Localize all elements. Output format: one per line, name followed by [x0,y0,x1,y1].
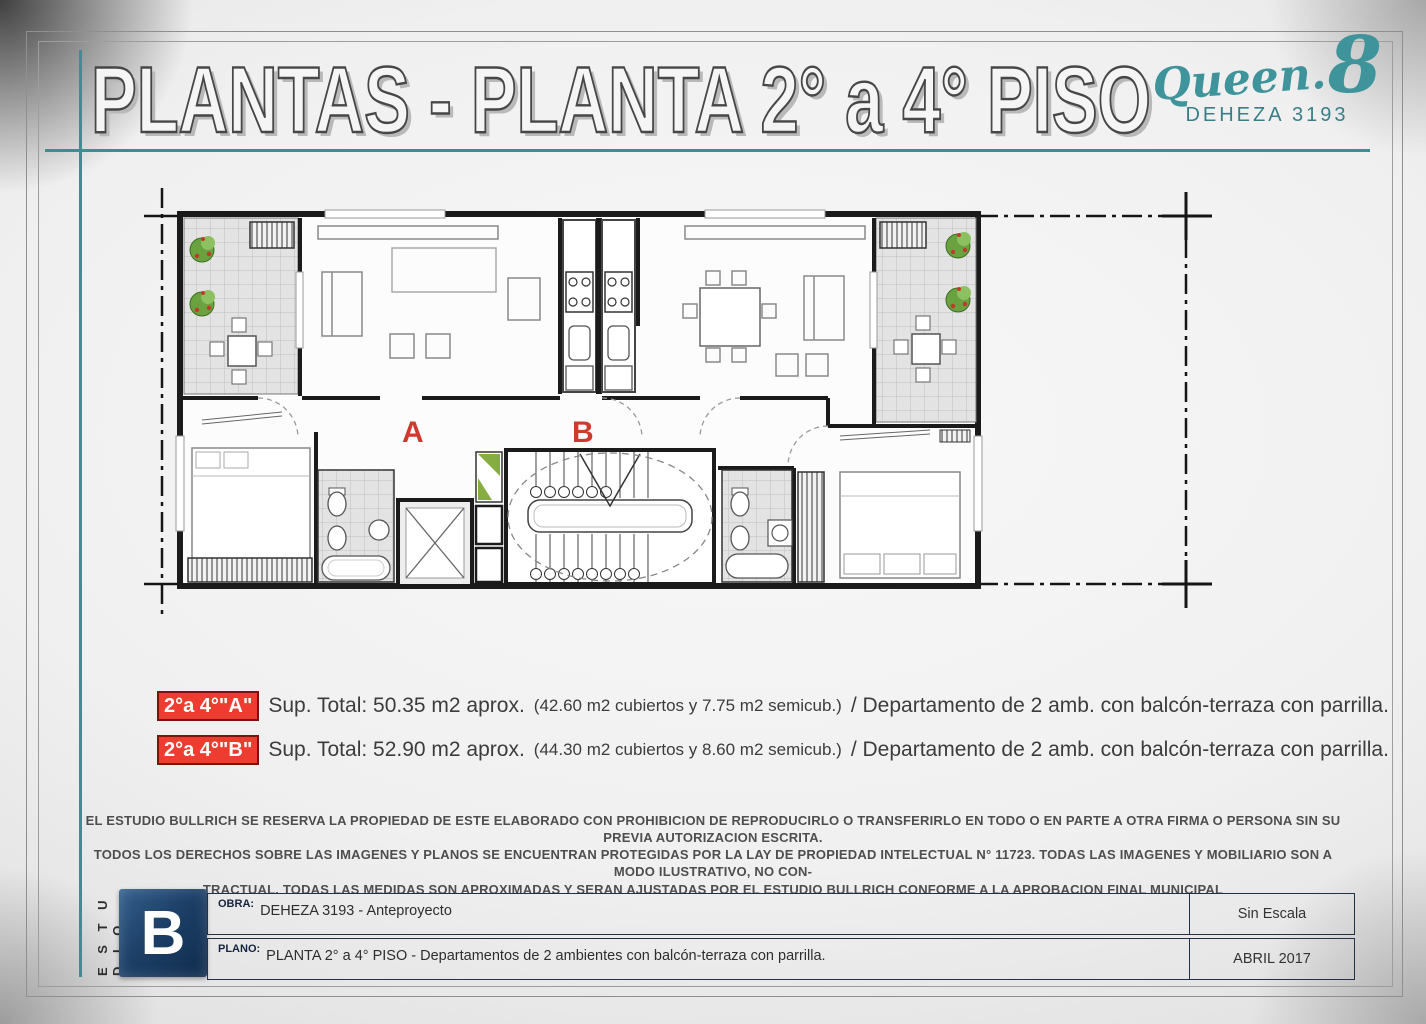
sheet-title: PLANTAS - PLANTA 2° a 4° PISO PLANTAS - … [86,52,1168,154]
brand-name: Queen. [1151,52,1327,108]
toilet-b [731,492,749,516]
sheet-title-text: PLANTAS - PLANTA 2° a 4° PISO [91,52,1151,152]
stove-a [566,272,593,312]
bathroom-a [318,470,394,582]
wardrobe-a [188,558,312,582]
floor-plan: A B [140,186,1222,618]
summary-row-a: 2°a 4°"A" Sup. Total: 50.35 m2 aprox. (4… [157,691,1389,721]
date-value: ABRIL 2017 [1190,939,1354,979]
wardrobe-b [798,472,824,582]
studio-logo-letter: B [141,898,186,969]
kitchen-block [560,218,638,394]
bidet-b [731,526,749,550]
sink-b [608,326,629,360]
balcony-terrace-b [870,218,976,424]
stairwell [506,450,714,584]
disclaimer: EL ESTUDIO BULLRICH SE RESERVA LA PROPIE… [83,812,1343,898]
obra-value: DEHEZA 3193 - Anteproyecto [260,903,452,934]
titleblock-table: OBRA: DEHEZA 3193 - Anteproyecto Sin Esc… [207,893,1355,983]
titleblock-row-plano: PLANO: PLANTA 2° a 4° PISO - Departament… [207,938,1355,980]
elevator [398,500,472,586]
sheet: PLANTAS - PLANTA 2° a 4° PISO PLANTAS - … [0,0,1426,1024]
obra-label: OBRA: [218,898,254,934]
unit-a-description: / Departamento de 2 amb. con balcón-terr… [851,694,1389,718]
bathtub-b [726,554,788,578]
brand-logo: Queen.8 DEHEZA 3193 [1152,44,1382,127]
planter-boxes [476,452,502,582]
plano-label: PLANO: [218,943,260,979]
parrilla-grill-a [250,222,294,248]
bathroom-b [722,470,792,582]
disclaimer-line-2: TODOS LOS DERECHOS SOBRE LAS IMAGENES Y … [83,846,1343,880]
unit-a-detail: (42.60 m2 cubiertos y 7.75 m2 semicub.) [534,696,842,716]
titleblock-row-obra: OBRA: DEHEZA 3193 - Anteproyecto Sin Esc… [207,893,1355,935]
unit-a-total: Sup. Total: 50.35 m2 aprox. [268,694,524,718]
brand-logo-script: Queen.8 [1150,36,1383,108]
studio-logo: B [119,889,207,977]
stove-b [605,272,632,312]
unit-b-badge: 2°a 4°"B" [157,735,259,765]
sink-a [569,326,590,360]
accent-line-vertical [79,50,82,977]
toilet-a [328,492,346,516]
brand-number: 8 [1327,38,1381,94]
bed-b [840,472,960,578]
unit-b-description: / Departamento de 2 amb. con balcón-terr… [851,738,1389,762]
bidet-a [328,526,346,550]
disclaimer-line-1: EL ESTUDIO BULLRICH SE RESERVA LA PROPIE… [83,812,1343,846]
plano-value: PLANTA 2° a 4° PISO - Departamentos de 2… [266,948,825,979]
unit-a-label: A [402,416,424,449]
bed-a [192,448,310,570]
unit-b-detail: (44.30 m2 cubiertos y 8.60 m2 semicub.) [534,740,842,760]
unit-b-label: B [572,416,594,449]
scale-value: Sin Escala [1190,894,1354,934]
washbasin-a [369,520,389,540]
unit-b-total: Sup. Total: 52.90 m2 aprox. [268,738,524,762]
balcony-terrace-a [184,218,303,396]
unit-a-badge: 2°a 4°"A" [157,691,259,721]
parrilla-grill-b [880,222,926,248]
summary-row-b: 2°a 4°"B" Sup. Total: 52.90 m2 aprox. (4… [157,735,1389,765]
